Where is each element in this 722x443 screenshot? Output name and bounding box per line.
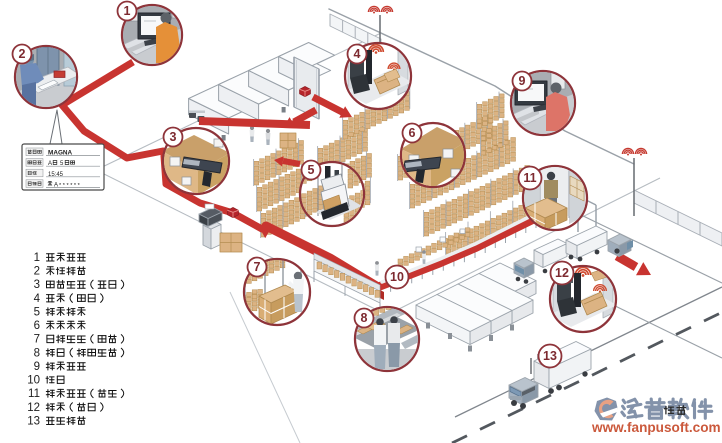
svg-text:9: 9 <box>519 74 526 88</box>
svg-text:12: 12 <box>555 266 569 280</box>
svg-text:1: 1 <box>124 4 131 18</box>
svg-text:3: 3 <box>170 130 177 144</box>
svg-text:6: 6 <box>34 320 40 332</box>
svg-text:4: 4 <box>34 293 41 305</box>
svg-text:7: 7 <box>34 334 40 346</box>
svg-text:3: 3 <box>34 279 40 291</box>
svg-text:10: 10 <box>27 375 40 387</box>
svg-text:A: A <box>54 182 58 188</box>
svg-text:2: 2 <box>34 266 40 278</box>
svg-text:www.fanpusoft.com: www.fanpusoft.com <box>591 420 721 435</box>
svg-text:11: 11 <box>523 171 536 185</box>
svg-text:10: 10 <box>390 270 404 284</box>
svg-text:* * * * * *: * * * * * * <box>59 183 81 189</box>
svg-text:7: 7 <box>254 260 261 274</box>
svg-text:A: A <box>48 161 52 167</box>
svg-text:1: 1 <box>34 252 40 264</box>
svg-text:13: 13 <box>27 415 40 427</box>
svg-text:9: 9 <box>34 361 40 373</box>
svg-text:4: 4 <box>354 47 361 61</box>
svg-text:MAGNA: MAGNA <box>48 150 73 157</box>
svg-text:8: 8 <box>34 347 40 359</box>
svg-text:11: 11 <box>28 388 40 400</box>
svg-text:5: 5 <box>308 163 315 177</box>
svg-text:2: 2 <box>19 47 26 61</box>
svg-text:5: 5 <box>34 307 40 319</box>
svg-text:13: 13 <box>543 349 557 363</box>
svg-text:8: 8 <box>361 311 368 325</box>
svg-text:12: 12 <box>27 402 40 414</box>
svg-text:15:45: 15:45 <box>48 172 64 178</box>
svg-text:6: 6 <box>409 126 416 140</box>
